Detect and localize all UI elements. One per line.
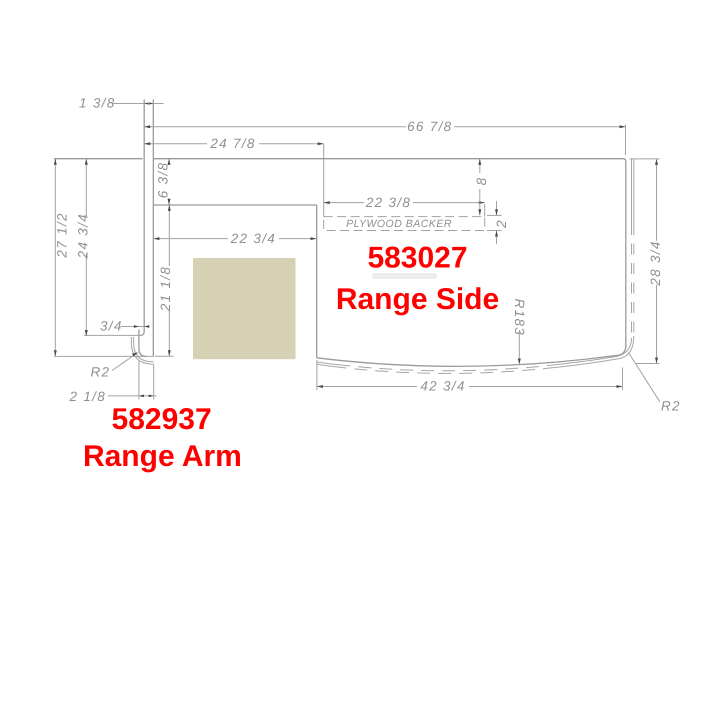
svg-text:22 3/8: 22 3/8 (365, 195, 411, 210)
svg-text:8: 8 (474, 177, 489, 186)
svg-text:2: 2 (494, 219, 509, 229)
svg-text:28 3/4: 28 3/4 (648, 240, 663, 286)
svg-text:Range Arm: Range Arm (83, 440, 242, 473)
svg-text:24 7/8: 24 7/8 (209, 136, 255, 151)
svg-text:3/4: 3/4 (100, 319, 123, 334)
svg-text:Range Side: Range Side (336, 283, 499, 316)
svg-text:66 7/8: 66 7/8 (407, 119, 452, 134)
svg-text:24 3/4: 24 3/4 (76, 213, 91, 259)
svg-text:27 1/2: 27 1/2 (55, 212, 70, 258)
svg-text:22 3/4: 22 3/4 (230, 231, 276, 246)
svg-text:R183: R183 (512, 299, 527, 336)
svg-text:1 3/8: 1 3/8 (79, 96, 116, 111)
svg-text:21 1/8: 21 1/8 (158, 266, 173, 312)
svg-text:42 3/4: 42 3/4 (420, 379, 465, 394)
svg-text:R2: R2 (661, 399, 681, 414)
svg-text:6 3/8: 6 3/8 (156, 162, 171, 199)
svg-text:PLYWOOD BACKER: PLYWOOD BACKER (346, 218, 452, 230)
svg-text:582937: 582937 (112, 403, 212, 436)
svg-text:R2: R2 (91, 365, 111, 380)
svg-text:2 1/8: 2 1/8 (69, 389, 107, 404)
svg-text:583027: 583027 (367, 242, 467, 275)
